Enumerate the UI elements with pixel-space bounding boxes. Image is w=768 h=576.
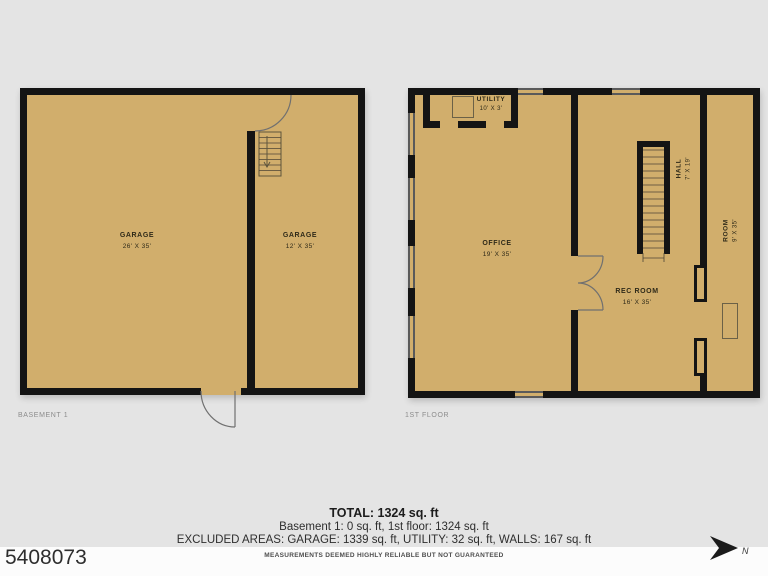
north-compass-icon: N xyxy=(703,530,763,566)
office-recroom-wall xyxy=(571,88,578,256)
basement-entry-door-opening xyxy=(201,388,241,395)
room-dims: 9' X 35' xyxy=(732,219,741,242)
excluded-areas-text: EXCLUDED AREAS: GARAGE: 1339 sq. ft, UTI… xyxy=(0,534,768,546)
total-area-text: TOTAL: 1324 sq. ft xyxy=(0,506,768,520)
room-name: HALL xyxy=(675,159,684,179)
hall-room-wall xyxy=(700,376,707,398)
room-label-utility: UTILITY 10' X 3' xyxy=(460,95,522,114)
disclaimer-text: MEASUREMENTS DEEMED HIGHLY RELIABLE BUT … xyxy=(0,552,768,559)
room-label-garage-main: GARAGE 26' X 35' xyxy=(77,231,197,251)
room-label-office: OFFICE 19' X 35' xyxy=(447,239,547,259)
room-name: GARAGE xyxy=(120,231,154,240)
basement-divider-wall xyxy=(247,88,255,395)
cased-opening xyxy=(694,265,707,302)
room-fixture xyxy=(722,303,738,339)
room-dims: 19' X 35' xyxy=(483,250,512,259)
photo-id: 5408073 xyxy=(5,546,87,570)
window xyxy=(612,88,640,95)
room-name: REC ROOM xyxy=(615,287,658,296)
room-label-garage-side: GARAGE 12' X 35' xyxy=(260,231,340,251)
room-name: GARAGE xyxy=(283,231,317,240)
room-dims: 7' X 19' xyxy=(685,157,694,180)
first-floor-plan-label: 1ST FLOOR xyxy=(405,412,449,419)
compass-north-label: N xyxy=(742,546,749,556)
floor-areas-text: Basement 1: 0 sq. ft, 1st floor: 1324 sq… xyxy=(0,521,768,533)
utility-wall xyxy=(504,121,518,128)
office-recroom-wall xyxy=(571,310,578,398)
window xyxy=(408,178,415,220)
entry-door-icon xyxy=(201,391,235,427)
utility-wall xyxy=(423,121,440,128)
window xyxy=(408,246,415,288)
basement-divider-door-opening xyxy=(247,95,255,131)
room-dims: 12' X 35' xyxy=(286,242,315,251)
window xyxy=(408,113,415,155)
stairwell-wall xyxy=(664,141,670,254)
basement-plan-label: BASEMENT 1 xyxy=(18,412,68,419)
window xyxy=(517,88,543,95)
room-dims: 10' X 3' xyxy=(480,105,503,114)
window xyxy=(408,316,415,358)
hall-room-wall xyxy=(700,88,707,265)
stairwell-wall xyxy=(637,141,643,254)
floorplan-image: GARAGE 26' X 35' GARAGE 12' X 35' BASEME… xyxy=(0,0,768,576)
utility-wall xyxy=(458,121,486,128)
room-name: ROOM xyxy=(722,219,731,242)
room-name: UTILITY xyxy=(477,95,506,104)
room-dims: 26' X 35' xyxy=(123,242,152,251)
cased-opening xyxy=(694,338,707,376)
room-label-hall: HALL 7' X 19' xyxy=(675,139,694,199)
room-label-room: ROOM 9' X 35' xyxy=(722,201,741,261)
room-name: OFFICE xyxy=(482,239,511,248)
room-dims: 16' X 35' xyxy=(623,298,652,307)
room-label-rec-room: REC ROOM 16' X 35' xyxy=(587,287,687,307)
window xyxy=(515,391,543,398)
